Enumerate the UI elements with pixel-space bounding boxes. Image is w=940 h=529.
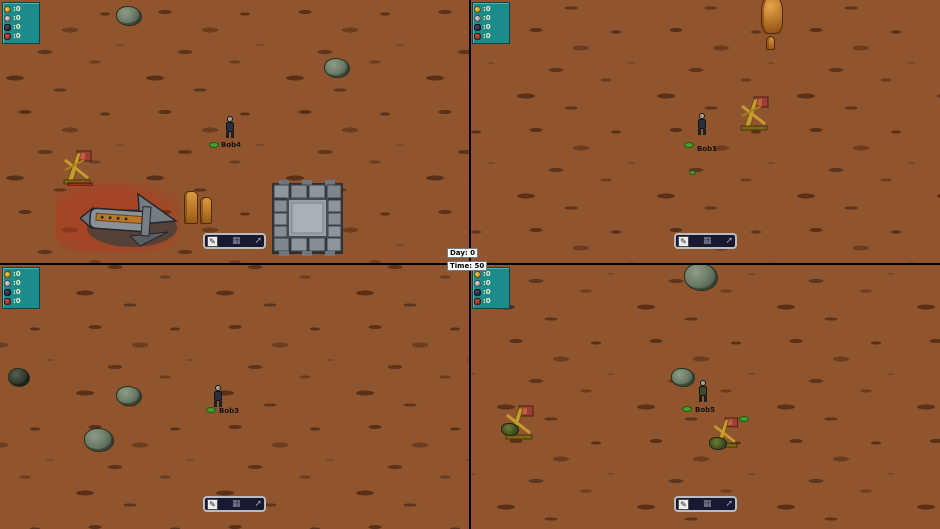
meat-resource-icon: [474, 298, 481, 305]
selection-marker: [682, 406, 692, 412]
camo-unit[interactable]: [501, 423, 519, 436]
resource-value: :0: [13, 298, 21, 305]
resource-value: :0: [483, 6, 491, 13]
action-toolbar[interactable]: ✎ ▦ ➚: [203, 233, 266, 249]
rock[interactable]: [684, 265, 718, 291]
colonist-player-1[interactable]: [224, 116, 236, 138]
cactus-lobe: [766, 36, 775, 50]
resource-value: :0: [483, 271, 491, 278]
resource-row: :0: [474, 32, 508, 41]
colonist-body: [699, 386, 707, 396]
resource-row: :0: [474, 5, 508, 14]
colonist-body: [226, 122, 234, 132]
resource-row: :0: [4, 288, 38, 297]
camo-unit[interactable]: [709, 437, 727, 450]
meat-resource-icon: [4, 33, 11, 40]
resource-value: :0: [13, 271, 21, 278]
resource-row: :0: [4, 297, 38, 306]
resource-value: :0: [483, 33, 491, 40]
silver-resource-icon: [474, 15, 481, 22]
pencil-tool-icon[interactable]: ✎: [207, 499, 218, 510]
resource-row: :0: [474, 14, 508, 23]
grid-menu-icon[interactable]: ▦: [232, 237, 241, 246]
colonist-name-label: Bob5: [695, 407, 715, 414]
resource-row: :0: [4, 5, 38, 14]
cactus-lobe: [761, 0, 783, 34]
colonist-player-3[interactable]: [212, 385, 224, 407]
pencil-tool-icon[interactable]: ✎: [678, 236, 689, 247]
viewport-player-3[interactable]: Bob3 :0 :0 :0 :0 ✎ ▦ ➚: [0, 265, 469, 529]
colonist-legs: [699, 396, 707, 402]
silver-resource-icon: [4, 15, 11, 22]
silver-resource-icon: [474, 280, 481, 287]
resource-row: :0: [4, 14, 38, 23]
resource-panel: :0 :0 :0 :0: [2, 2, 40, 44]
grid-menu-icon[interactable]: ▦: [703, 237, 712, 246]
diagonal-arrow-icon[interactable]: ➚: [254, 237, 262, 246]
resource-value: :0: [13, 33, 21, 40]
viewport-player-2[interactable]: Bob1 :0 :0 :0 :0 ✎ ▦ ➚: [471, 0, 940, 263]
grid-menu-icon[interactable]: ▦: [232, 500, 241, 509]
selection-marker: [684, 142, 694, 148]
resource-value: :0: [13, 280, 21, 287]
resource-value: :0: [13, 24, 21, 31]
game-screen: Bob4 :0 :0 :0 :0 ✎ ▦ ➚: [0, 0, 940, 529]
selection-marker: [206, 407, 216, 413]
resource-row: :0: [474, 288, 508, 297]
resource-value: :0: [483, 289, 491, 296]
colonist-player-2[interactable]: [696, 113, 708, 135]
ore-resource-icon: [474, 289, 481, 296]
resource-value: :0: [483, 298, 491, 305]
diagonal-arrow-icon[interactable]: ➚: [254, 500, 262, 509]
resource-row: :0: [4, 23, 38, 32]
resource-panel: :0 :0 :0 :0: [472, 267, 510, 309]
action-toolbar[interactable]: ✎ ▦ ➚: [203, 496, 266, 512]
pencil-tool-icon[interactable]: ✎: [678, 499, 689, 510]
cactus[interactable]: [184, 191, 212, 224]
colonist-name-label: Bob1: [697, 146, 717, 153]
gold-resource-icon: [474, 271, 481, 278]
resource-value: :0: [13, 6, 21, 13]
drill-rig[interactable]: [62, 150, 94, 190]
ore-resource-icon: [4, 24, 11, 31]
resource-row: :0: [474, 297, 508, 306]
resource-row: :0: [474, 270, 508, 279]
crashed-ship[interactable]: [80, 188, 180, 254]
ore-resource-icon: [4, 289, 11, 296]
silver-resource-icon: [4, 280, 11, 287]
colonist-legs: [226, 132, 234, 138]
colonist-body: [698, 119, 706, 129]
resource-panel: :0 :0 :0 :0: [2, 267, 40, 309]
resource-row: :0: [474, 279, 508, 288]
colonist-name-label: Bob3: [219, 408, 239, 415]
diagonal-arrow-icon[interactable]: ➚: [725, 237, 733, 246]
day-counter: Day: 0: [447, 248, 478, 258]
drill-rig[interactable]: [739, 96, 771, 136]
landing-platform[interactable]: [271, 180, 344, 261]
colonist-name-label: Bob4: [221, 142, 241, 149]
rock[interactable]: [671, 368, 695, 387]
resource-value: :0: [483, 280, 491, 287]
colonist-body: [214, 391, 222, 401]
selection-marker: [209, 142, 219, 148]
viewport-player-4[interactable]: Bob5 :0 :0 :0 :0 ✎ ▦ ➚: [471, 265, 940, 529]
resource-panel: :0 :0 :0 :0: [472, 2, 510, 44]
resource-value: :0: [13, 15, 21, 22]
colonist-legs: [698, 129, 706, 135]
viewport-player-1[interactable]: Bob4 :0 :0 :0 :0 ✎ ▦ ➚: [0, 0, 469, 263]
resource-row: :0: [4, 279, 38, 288]
gold-resource-icon: [474, 6, 481, 13]
colonist-player-4[interactable]: [697, 380, 709, 402]
pencil-tool-icon[interactable]: ✎: [207, 236, 218, 247]
rock[interactable]: [116, 6, 142, 26]
resource-row: :0: [474, 23, 508, 32]
resource-value: :0: [13, 289, 21, 296]
rock[interactable]: [324, 58, 350, 78]
waypoint-marker: [689, 170, 696, 175]
cactus-lobe: [184, 191, 198, 224]
rock[interactable]: [84, 428, 114, 452]
cactus-lobe: [200, 197, 212, 224]
resource-value: :0: [483, 24, 491, 31]
meat-resource-icon: [4, 298, 11, 305]
resource-row: :0: [4, 270, 38, 279]
gold-resource-icon: [4, 271, 11, 278]
resource-row: :0: [4, 32, 38, 41]
rock[interactable]: [8, 368, 30, 387]
rock[interactable]: [116, 386, 142, 406]
resource-value: :0: [483, 15, 491, 22]
action-toolbar[interactable]: ✎ ▦ ➚: [674, 233, 737, 249]
meat-resource-icon: [474, 33, 481, 40]
ore-resource-icon: [474, 24, 481, 31]
action-toolbar[interactable]: ✎ ▦ ➚: [674, 496, 737, 512]
gold-resource-icon: [4, 6, 11, 13]
diagonal-arrow-icon[interactable]: ➚: [725, 500, 733, 509]
grid-menu-icon[interactable]: ▦: [703, 500, 712, 509]
cactus[interactable]: [761, 0, 783, 50]
time-counter: Time: 50: [447, 261, 487, 271]
